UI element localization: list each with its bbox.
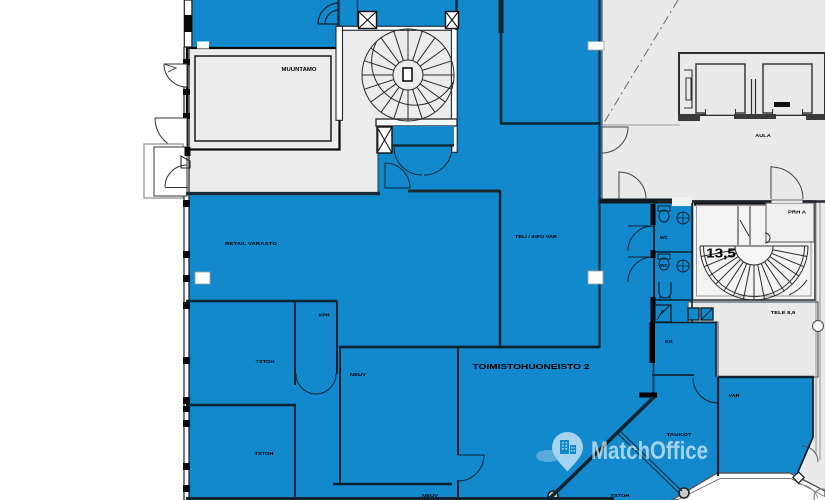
svg-text:AULA: AULA xyxy=(755,133,771,138)
svg-text:MUUNTAMO: MUUNTAMO xyxy=(282,67,317,73)
svg-text:TSTOH: TSTOH xyxy=(611,493,631,498)
svg-text:PRH A: PRH A xyxy=(788,210,807,215)
svg-text:13,5: 13,5 xyxy=(706,246,736,261)
svg-text:TSTOH: TSTOH xyxy=(256,359,276,364)
svg-text:WC: WC xyxy=(660,263,669,268)
svg-text:TSTOH: TSTOH xyxy=(255,451,275,456)
svg-text:TOIMISTOHUONEISTO 2: TOIMISTOHUONEISTO 2 xyxy=(473,362,590,371)
svg-text:TELE 8,9: TELE 8,9 xyxy=(771,310,796,315)
svg-text:WC: WC xyxy=(660,235,669,240)
svg-text:KPH: KPH xyxy=(319,313,330,318)
svg-text:RETAIL VARASTO: RETAIL VARASTO xyxy=(225,241,277,247)
svg-text:KK: KK xyxy=(665,339,674,344)
svg-text:VAR: VAR xyxy=(729,393,741,398)
svg-text:TELI / INFO VAR: TELI / INFO VAR xyxy=(515,234,558,239)
svg-text:MatchOffice: MatchOffice xyxy=(591,437,708,465)
svg-text:NEUV: NEUV xyxy=(350,372,367,377)
